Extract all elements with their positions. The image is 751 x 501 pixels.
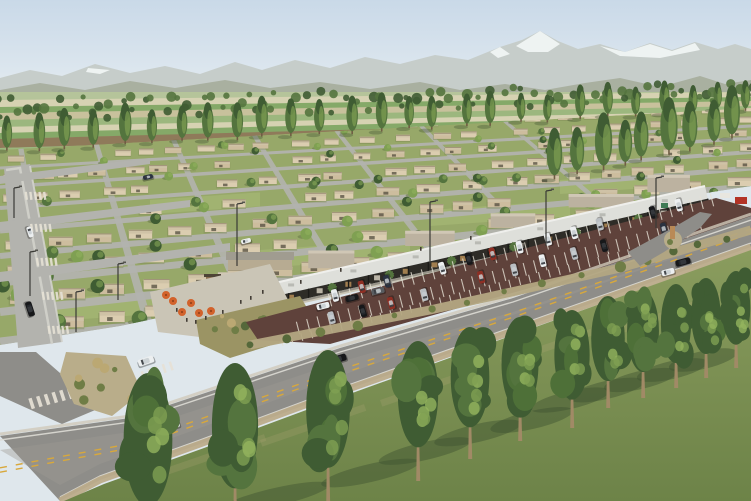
aerial-rendering (0, 0, 751, 501)
rendering-canvas (0, 0, 751, 501)
person (470, 236, 472, 240)
person (195, 320, 197, 324)
vehicle (136, 355, 156, 369)
patio-umbrella (195, 309, 203, 317)
person (250, 296, 252, 300)
person (205, 316, 207, 320)
person (262, 290, 264, 294)
patio-umbrella (178, 308, 186, 316)
patio-umbrella (162, 291, 170, 299)
person (300, 280, 302, 284)
person (222, 310, 224, 314)
person (186, 318, 188, 322)
person (340, 268, 342, 272)
patio-umbrella (207, 307, 215, 315)
patio-umbrella (187, 299, 195, 307)
patio-umbrella (169, 297, 177, 305)
person (420, 247, 422, 251)
person (176, 308, 178, 312)
person (240, 300, 242, 304)
